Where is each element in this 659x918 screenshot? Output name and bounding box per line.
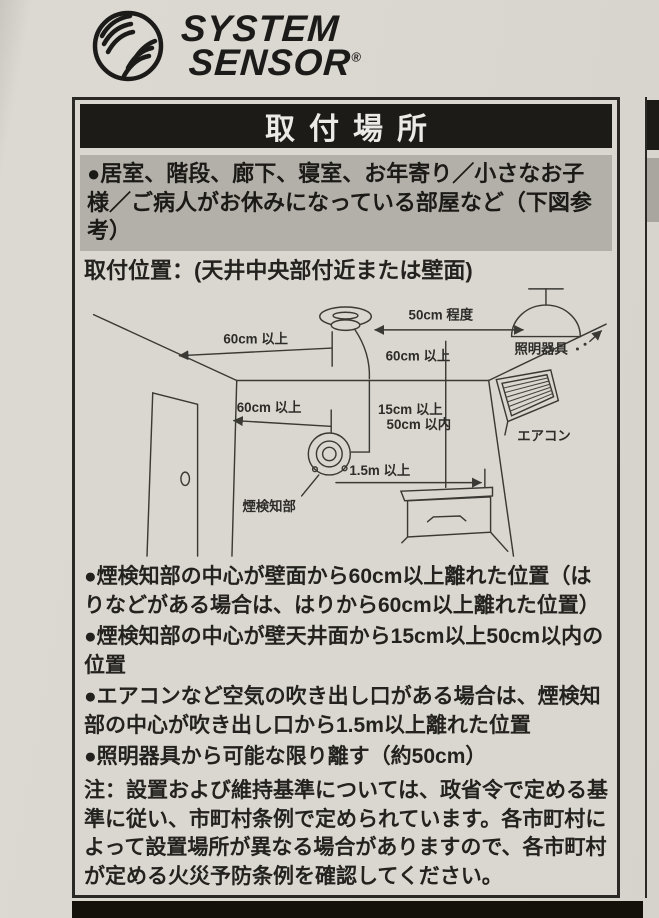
registered-trademark: ® xyxy=(351,50,362,65)
wall-gap-label: 60cm 以上 xyxy=(237,400,302,415)
wall-offset-label: 60cm 以上 xyxy=(386,349,451,364)
rule-aircon-distance: ●エアコンなど空気の吹き出し口がある場合は、煙検知部の中心が吹き出し口から1.5… xyxy=(84,683,608,740)
door-knob xyxy=(181,472,190,485)
adjacent-panel-graybox-edge xyxy=(647,158,659,222)
rule-wall-distance: ●煙検知部の中心が壁面から60cm以上離れた位置（はりなどがある場合は、はりから… xyxy=(84,563,608,620)
rule-lighting-distance: ●照明器具から可能な限り離す（約50cm） xyxy=(84,743,608,772)
aircon-label: エアコン xyxy=(517,429,570,444)
mounting-position-label: 取付位置：(天井中央部付近または壁面) xyxy=(80,251,612,284)
detector-drop-curve xyxy=(355,330,369,379)
door xyxy=(147,393,198,556)
leaflet-paper: SYSTEM SENSOR® 取付場所 ●居室、階段、廊下、寝室、お年寄り／小さ… xyxy=(0,0,659,918)
system-sensor-swirl-icon xyxy=(86,6,170,86)
installation-section-panel: 取付場所 ●居室、階段、廊下、寝室、お年寄り／小さなお子様／ご病人がお休みになっ… xyxy=(72,97,620,898)
range-label-min: 15cm 以上 xyxy=(378,402,443,417)
ceiling-offset-arrow xyxy=(179,348,332,356)
rule-ceiling-distance: ●煙検知部の中心が壁天井面から15cm以上50cm以内の位置 xyxy=(84,623,608,680)
detector-leader-line xyxy=(302,475,319,496)
brand-name-line2: SENSOR® xyxy=(188,46,362,80)
section-title: 取付場所 xyxy=(80,104,612,148)
brand-name-line1: SYSTEM xyxy=(180,12,364,46)
lamp-distance-label: 50cm 程度 xyxy=(409,307,474,323)
cabinet-furniture xyxy=(401,488,508,552)
room-line-drawing: 照明器具 50cm 程度 60cm 以上 60cm 以上 15cm 以上 50 xyxy=(80,286,612,558)
adjacent-panel-edge xyxy=(645,97,659,898)
lamp-leader-arrow xyxy=(590,331,601,341)
wall-gap-arrow xyxy=(234,421,330,427)
ceiling-offset-label: 60cm 以上 xyxy=(223,331,288,346)
placement-rules: ●煙検知部の中心が壁面から60cm以上離れた位置（はりなどがある場合は、はりから… xyxy=(80,558,612,772)
recommended-rooms-note: ●居室、階段、廊下、寝室、お年寄り／小さなお子様／ご病人がお休みになっている部屋… xyxy=(80,155,612,251)
air-conditioner xyxy=(496,370,558,435)
regulation-note: 注：設置および維持基準については、政省令で定める基準に従い、市町村条例で定められ… xyxy=(80,777,612,891)
leader-dot xyxy=(584,343,587,346)
ceiling-left-edge xyxy=(94,315,237,381)
range-label-max: 50cm 以内 xyxy=(387,416,452,432)
leader-dot xyxy=(576,348,579,351)
installation-diagram: 照明器具 50cm 程度 60cm 以上 60cm 以上 15cm 以上 50 xyxy=(80,286,612,558)
detector-label: 煙検知部 xyxy=(242,498,295,514)
lamp-label: 照明器具 xyxy=(514,342,568,357)
adjacent-panel-header-edge xyxy=(647,100,659,150)
ceiling-smoke-detector xyxy=(320,307,372,330)
wall-smoke-detector xyxy=(308,433,350,475)
range-measure-line xyxy=(351,381,369,453)
next-section-header-edge xyxy=(72,901,643,918)
brand-logo: SYSTEM SENSOR® xyxy=(86,6,362,86)
aircon-distance-label: 1.5m 以上 xyxy=(349,463,410,478)
